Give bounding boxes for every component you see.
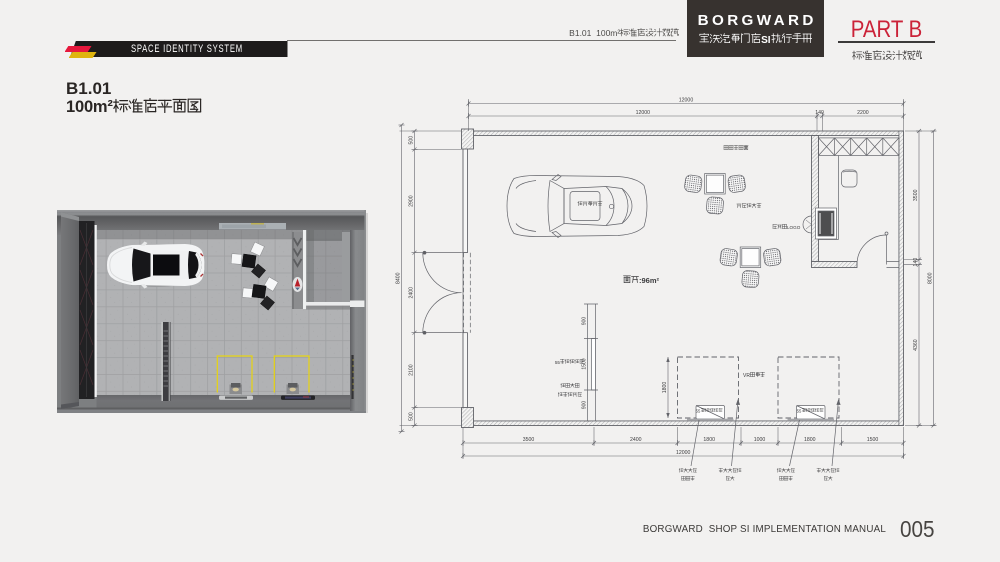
svg-text:2100: 2100 xyxy=(409,364,415,376)
svg-text:4360: 4360 xyxy=(913,339,919,351)
svg-text:500: 500 xyxy=(409,136,415,145)
svg-text:900: 900 xyxy=(582,317,588,326)
svg-text:1800: 1800 xyxy=(804,437,816,443)
svg-text:2900: 2900 xyxy=(409,195,415,207)
svg-text:8000: 8000 xyxy=(928,272,934,284)
svg-text:2400: 2400 xyxy=(409,287,415,299)
svg-text:2400: 2400 xyxy=(630,437,642,443)
svg-text:900: 900 xyxy=(582,401,588,410)
svg-text:12000: 12000 xyxy=(676,450,691,456)
svg-text:1500: 1500 xyxy=(867,437,879,443)
svg-text:1800: 1800 xyxy=(703,437,715,443)
svg-text:140: 140 xyxy=(913,258,919,267)
svg-text:1000: 1000 xyxy=(754,437,766,443)
svg-text:140: 140 xyxy=(815,110,824,116)
svg-text:1800: 1800 xyxy=(662,382,668,394)
svg-text:3500: 3500 xyxy=(913,189,919,201)
svg-text:3500: 3500 xyxy=(523,437,535,443)
svg-text:12000: 12000 xyxy=(679,98,694,104)
svg-text:12000: 12000 xyxy=(636,110,651,116)
svg-text:500: 500 xyxy=(409,412,415,421)
svg-text:2200: 2200 xyxy=(857,110,869,116)
svg-text:8400: 8400 xyxy=(396,272,402,284)
